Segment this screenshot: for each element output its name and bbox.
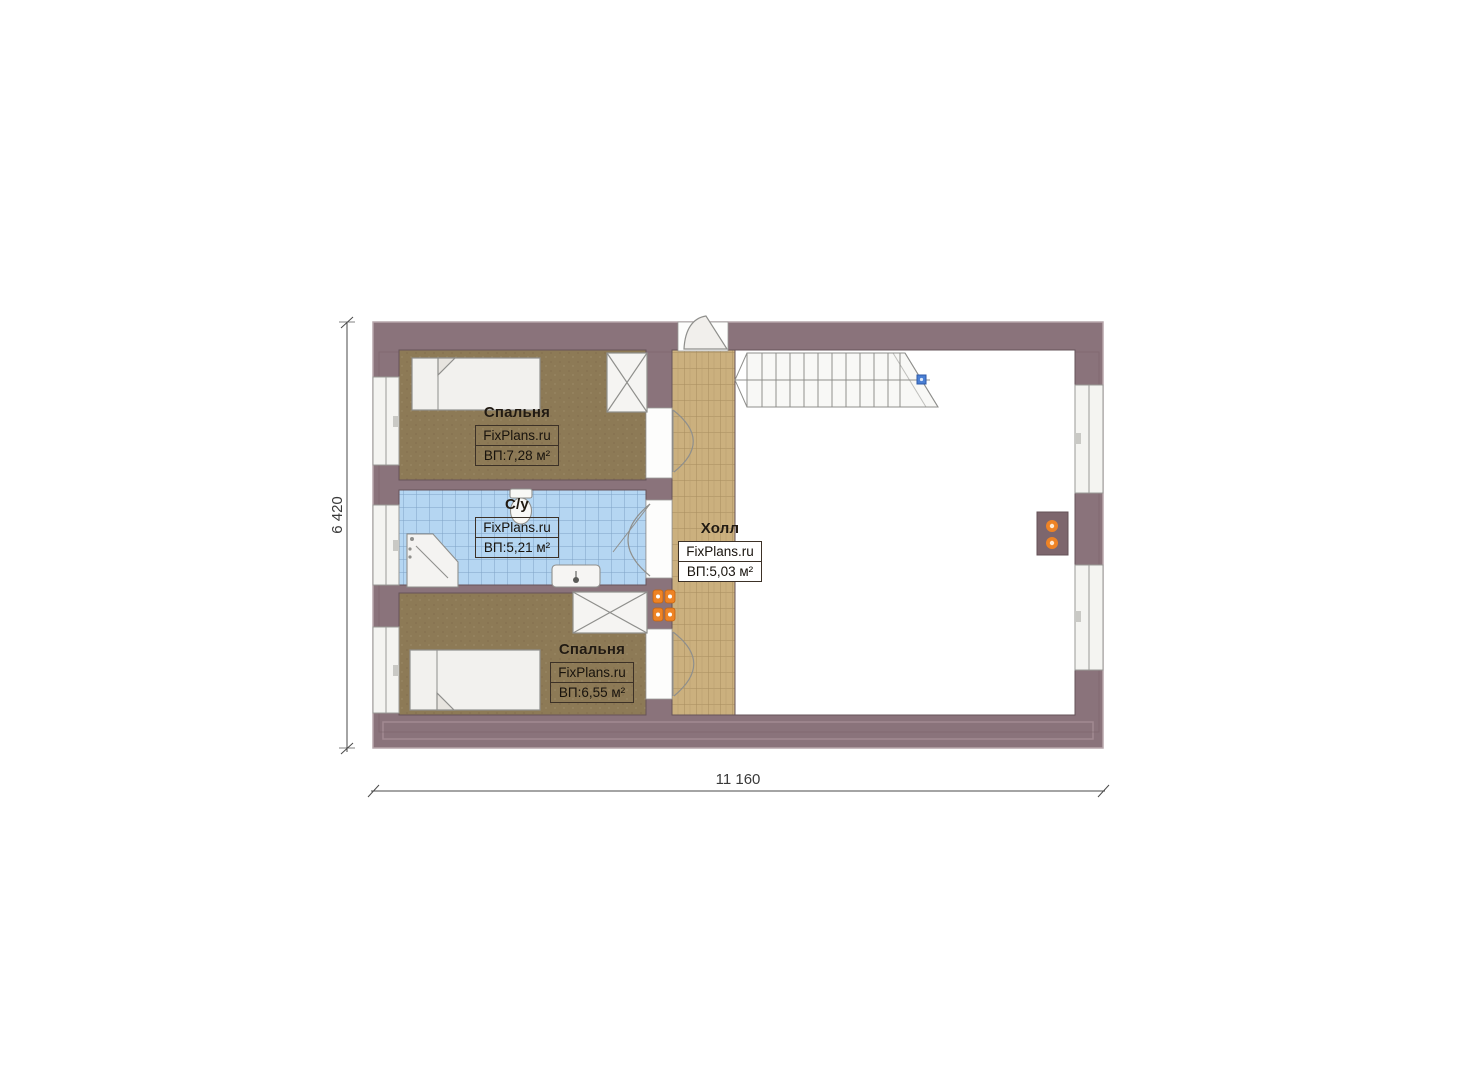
floor-plan-page: Спальня FixPlans.ru ВП:7,28 м² С/у FixPl… [0,0,1474,1080]
washbasin [552,565,600,587]
window-left-2 [373,505,399,585]
toilet [510,489,532,524]
wardrobe-bottom [573,592,647,633]
window-left-1 [373,377,399,465]
hall-floor [672,350,735,715]
bed-top [412,358,540,410]
staircase [735,353,938,407]
wardrobe-top [607,353,647,412]
floor-plan-drawing [0,0,1474,1080]
bed-bottom [410,650,540,710]
window-right-2 [1075,565,1103,670]
window-right-1 [1075,385,1103,493]
dimension-width-label: 11 160 [698,771,778,788]
wall-panel-right [1037,512,1068,555]
dimension-height-label: 6 420 [328,480,348,550]
window-left-3 [373,627,399,713]
